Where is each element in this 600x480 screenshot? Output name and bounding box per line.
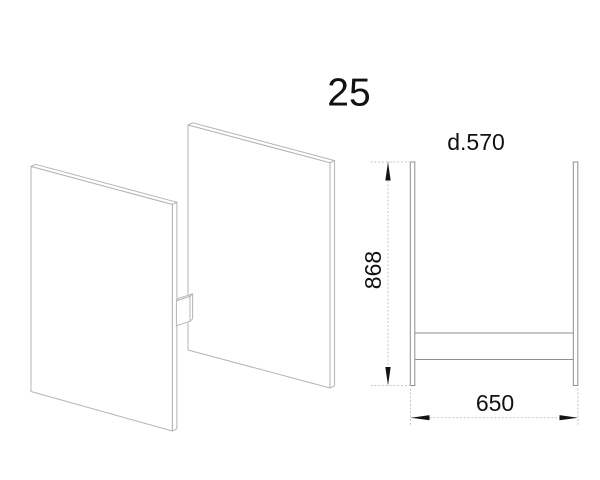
connector-front-face — [176, 296, 190, 325]
depth-dimension-label: d.570 — [447, 129, 505, 155]
drawing-labels: 25 d.570 868 650 — [327, 72, 514, 417]
width-dimension-label: 650 — [476, 390, 514, 416]
elevation-right-panel — [573, 162, 578, 386]
elevation-view — [410, 162, 578, 386]
height-dimension-label: 868 — [360, 251, 386, 289]
iso-right-panel-front-face — [188, 125, 330, 388]
iso-view — [31, 123, 335, 431]
iso-left-panel-front-face — [31, 167, 172, 432]
iso-right-panel-edge-face — [330, 161, 335, 388]
iso-connector-block — [176, 294, 192, 326]
iso-right-panel — [188, 123, 335, 388]
elevation-left-panel — [410, 162, 415, 386]
width-arrow-right-icon — [560, 415, 579, 420]
part-number-label: 25 — [327, 72, 370, 115]
height-arrow-down-icon — [385, 367, 390, 386]
dimension-lines — [371, 162, 578, 425]
height-arrow-up-icon — [385, 162, 390, 181]
drawing-svg: 25 d.570 868 650 — [0, 0, 600, 480]
iso-left-panel — [31, 164, 177, 431]
technical-drawing-page: 25 d.570 868 650 — [0, 0, 600, 480]
width-arrow-left-icon — [411, 415, 430, 420]
